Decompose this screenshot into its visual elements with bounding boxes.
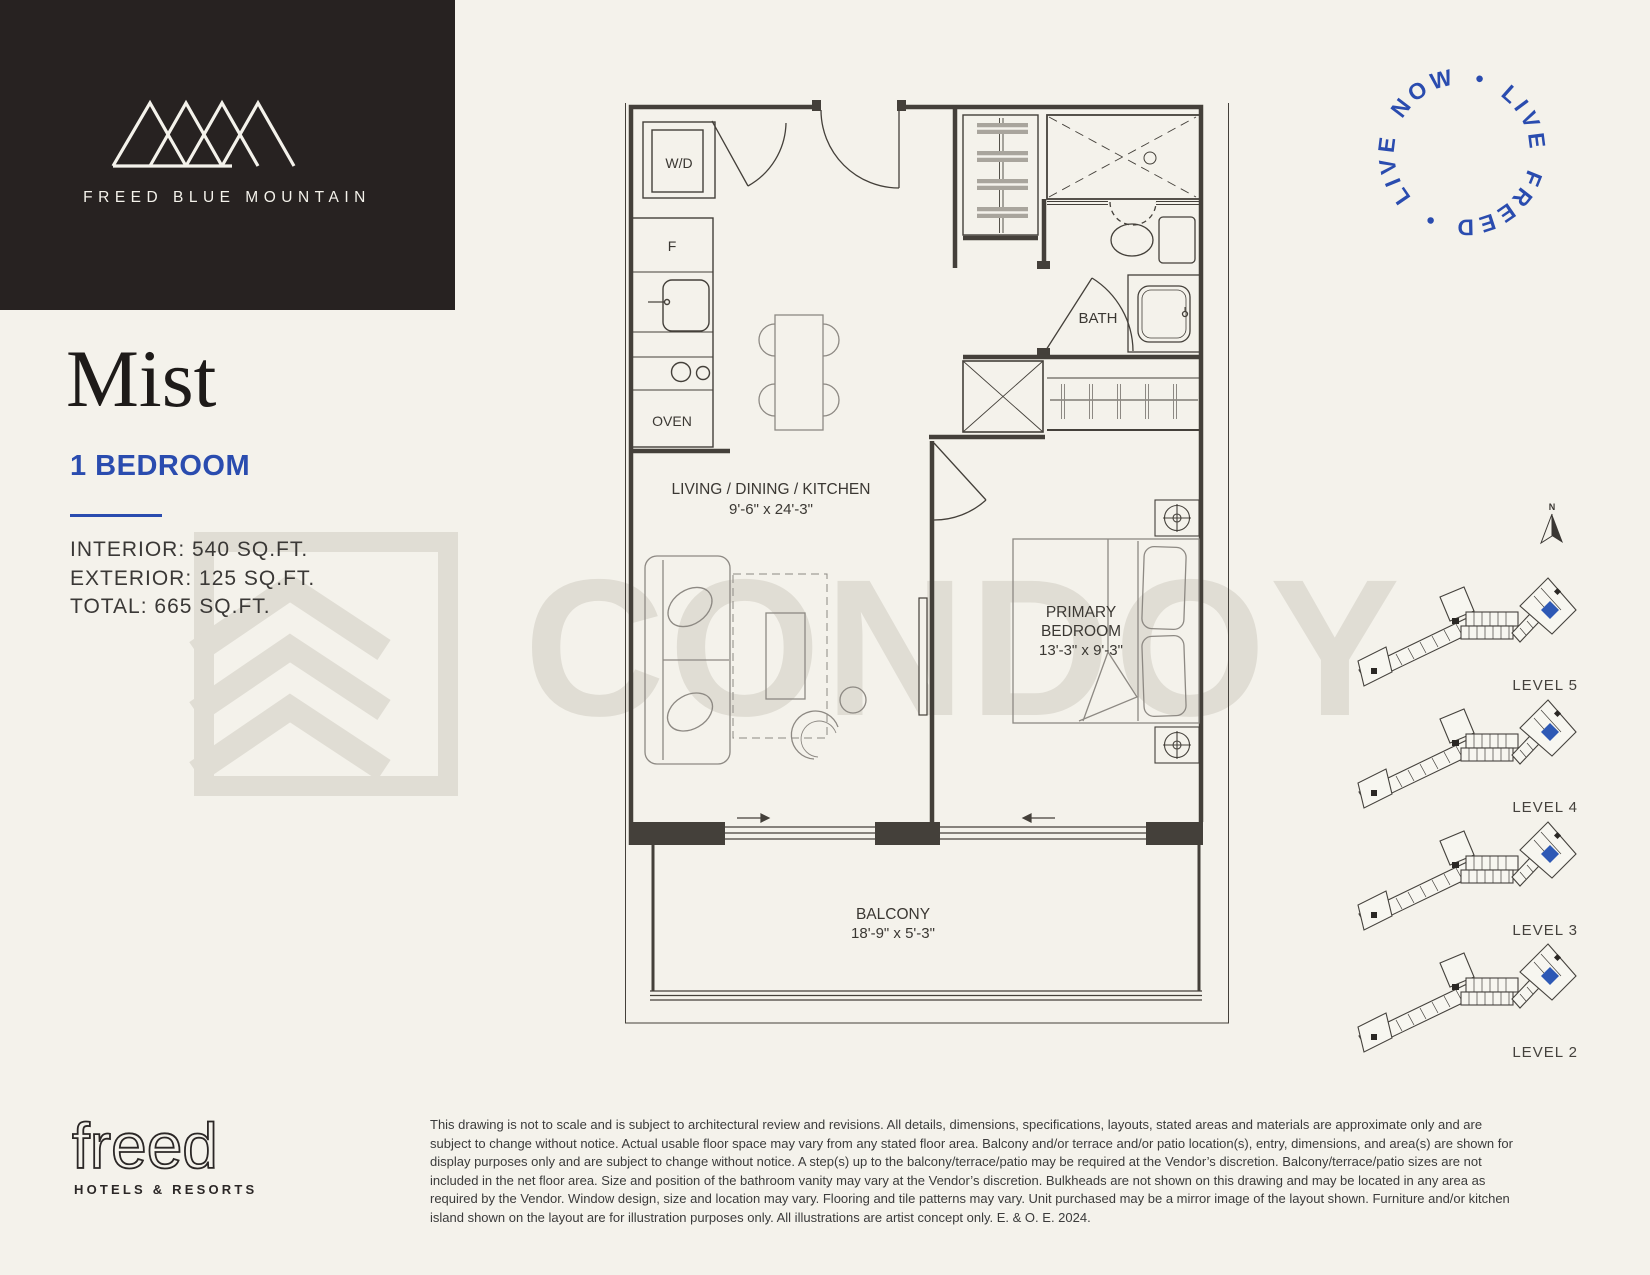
kitchen-sink [663,280,709,331]
brand-name: FREED BLUE MOUNTAIN [83,189,371,206]
balcony-label: BALCONY [856,906,930,923]
balcony-railing [650,991,1202,1000]
shower-drain [1144,152,1156,164]
disclaimer-text: This drawing is not to scale and is subj… [430,1116,1522,1228]
page-title: Mist [66,332,216,426]
area-specs: INTERIOR: 540 SQ.FT. EXTERIOR: 125 SQ.FT… [70,536,315,622]
bedroom-dims: 13'-3" x 9'-3" [1039,642,1123,659]
bedroom-door [934,443,986,520]
svg-text:LIVE NOW • LIVE FREED •: LIVE NOW • LIVE FREED • [1372,62,1552,242]
fridge-label: F [668,238,677,254]
walls [631,107,1201,845]
bath-vanity [1128,275,1201,352]
mountain-peaks-icon [113,103,294,166]
living-label: LIVING / DINING / KITCHEN [672,481,871,498]
closet-hangers [1062,384,1177,419]
living-furniture [645,556,866,764]
window-slide-arrows [737,814,1055,822]
brand-logo: FREED BLUE MOUNTAIN [0,0,455,310]
rug [733,574,827,738]
shower-door-swing [1110,202,1156,225]
brand-header-box: FREED BLUE MOUNTAIN [0,0,455,310]
shaft [963,361,1043,432]
spec-interior: INTERIOR: 540 SQ.FT. [70,536,315,565]
badge-circle-text: LIVE NOW • LIVE FREED • [1372,62,1552,242]
sliding-door-panel [919,598,927,715]
vanity-faucet [1183,312,1188,317]
bedroom-label-1: PRIMARY [1046,604,1116,621]
freed-wordmark: freed [72,1112,218,1182]
bath-label: BATH [1079,310,1118,327]
dining-set [759,315,839,430]
toilet [1111,217,1195,263]
living-dims: 9'-6" x 24'-3" [729,501,813,518]
bedroom-label-2: BEDROOM [1041,623,1121,640]
pillow [1142,546,1187,629]
unit-type-label: 1 BEDROOM [70,450,250,483]
entry-door [821,110,899,188]
throw-pillow [661,685,720,738]
oven-label: OVEN [652,413,692,429]
floorplan-drawing: W/D F OVEN BATH LIVING / DINING / KITCHE… [595,90,1240,1040]
level-5-label: LEVEL 5 [1512,677,1578,694]
wd-label: W/D [665,155,692,171]
wd-closet-door [712,121,786,186]
building-keyplans: N LEVEL 5 LEVEL 4 LEVEL 3 LEVEL 2 [1280,475,1600,1075]
keyplan-level-3 [1358,822,1576,930]
bedroom-closet [1047,378,1201,430]
wall-piers [629,100,1203,845]
divider-line [70,514,162,517]
closet-shelves [977,123,1028,218]
armchair [791,711,838,759]
live-now-live-freed-badge: LIVE NOW • LIVE FREED • [1372,62,1552,242]
dining-chairs [759,324,839,416]
keyplan-level-2 [1358,944,1576,1052]
entry-closet [963,115,1038,235]
dining-table [775,315,823,430]
balcony-dims: 18'-9" x 5'-3" [851,925,935,942]
throw-pillow [661,579,720,634]
side-table [840,687,866,713]
shower [1047,115,1201,205]
cooktop-burner [672,363,691,382]
level-2-label: LEVEL 2 [1512,1044,1578,1061]
keyplan-level-4 [1358,700,1576,808]
spec-total: TOTAL: 665 SQ.FT. [70,593,315,622]
level-4-label: LEVEL 4 [1512,799,1578,816]
pillow [1142,635,1187,716]
north-label: N [1549,502,1556,512]
keyplan-level-5 [1358,578,1576,686]
shower-glass [1047,202,1201,205]
cooktop-burner [697,367,710,380]
freed-logo: freed HOTELS & RESORTS [70,1112,290,1207]
floorplan-page: CONDOY FREED BLUE MOUNTAIN Mist 1 BEDROO… [0,0,1650,1275]
freed-tagline: HOTELS & RESORTS [74,1182,257,1197]
coffee-table [766,613,805,699]
level-3-label: LEVEL 3 [1512,922,1578,939]
spec-exterior: EXTERIOR: 125 SQ.FT. [70,565,315,594]
north-arrow-icon: N [1541,502,1563,543]
